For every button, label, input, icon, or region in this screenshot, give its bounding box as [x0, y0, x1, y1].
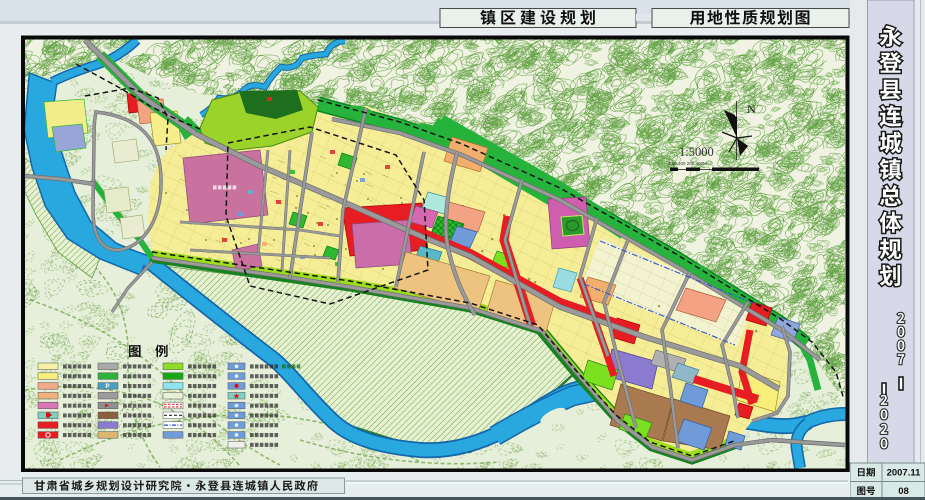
svg-text:N: N	[747, 102, 756, 116]
svg-text:08: 08	[898, 486, 909, 497]
svg-text:0 50 100 200: 0 50 100 200 400M	[668, 161, 707, 166]
svg-text:1:5000: 1:5000	[679, 145, 714, 159]
svg-text:2007.11: 2007.11	[887, 468, 922, 479]
svg-text:P: P	[106, 384, 110, 390]
